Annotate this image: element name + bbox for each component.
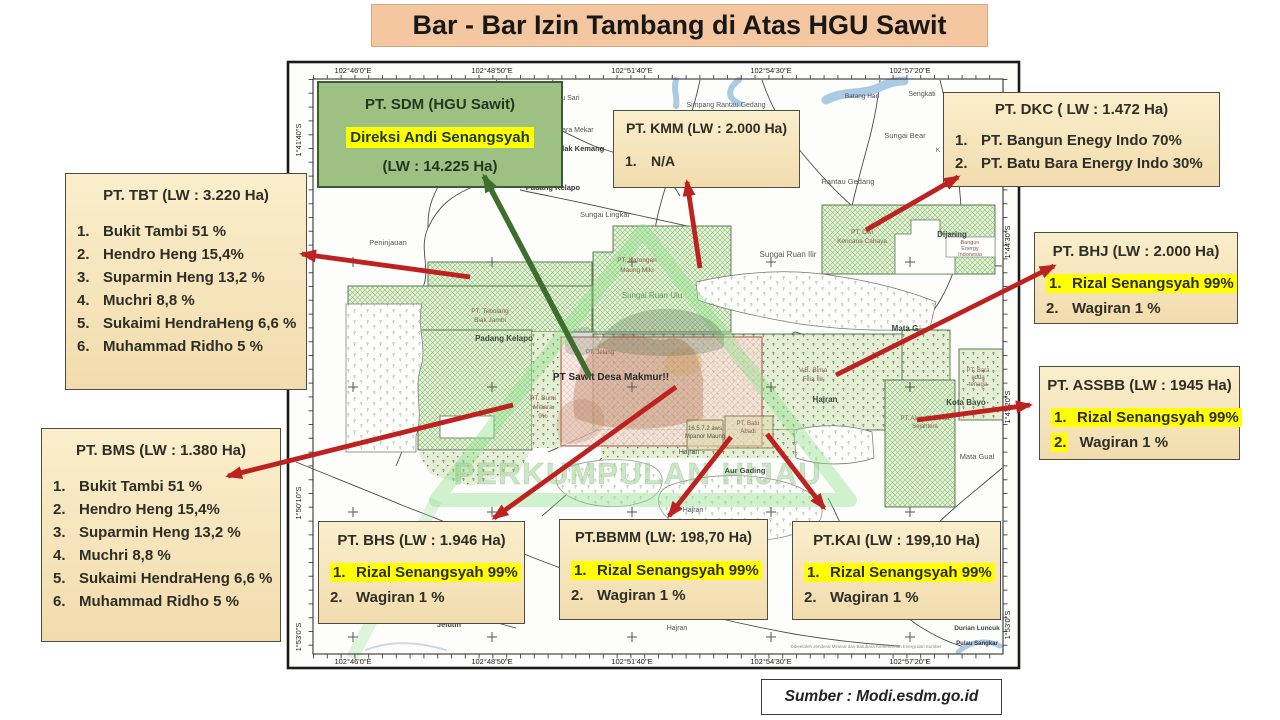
svg-text:102°46'0"E: 102°46'0"E	[334, 66, 371, 75]
svg-text:PT. Karongan: PT. Karongan	[617, 257, 657, 264]
svg-text:102°54'30"E: 102°54'30"E	[750, 657, 791, 666]
svg-text:16.5.7.2 aws: 16.5.7.2 aws	[688, 426, 722, 432]
svg-text:Peninjauan: Peninjauan	[369, 238, 407, 247]
svg-text:PT. Jelang: PT. Jelang	[586, 350, 614, 356]
svg-text:PT. Alam Semesta: PT. Alam Semesta	[900, 416, 950, 422]
svg-text:Hajran: Hajran	[683, 507, 704, 514]
svg-text:102°51'40"E: 102°51'40"E	[611, 66, 652, 75]
svg-text:Hajran: Hajran	[667, 625, 688, 632]
svg-text:Sungai Ruan Ilir: Sungai Ruan Ilir	[760, 250, 817, 259]
svg-text:PT Sawit Desa Makmur!!: PT Sawit Desa Makmur!!	[553, 372, 669, 383]
svg-text:Aur Gading: Aur Gading	[725, 466, 766, 475]
svg-text:Maung Milu: Maung Milu	[620, 267, 654, 274]
svg-text:PERKUMPULAN HIJAU: PERKUMPULAN HIJAU	[454, 456, 822, 491]
svg-text:Rantau Gedang: Rantau Gedang	[822, 177, 875, 186]
svg-text:Filia Ilir: Filia Ilir	[803, 376, 824, 383]
svg-text:PT. Dwi: PT. Dwi	[851, 229, 873, 236]
svg-text:1°44'30"S: 1°44'30"S	[1003, 226, 1012, 259]
svg-text:1°53'0"S: 1°53'0"S	[294, 623, 303, 652]
svg-text:PT. Bara: PT. Bara	[966, 368, 990, 374]
svg-text:102°48'50"E: 102°48'50"E	[471, 657, 512, 666]
svg-text:1°41'40"S: 1°41'40"S	[294, 124, 303, 157]
svg-text:Sungai Bear: Sungai Bear	[884, 131, 926, 140]
svg-text:PT. Batu: PT. Batu	[737, 421, 760, 427]
svg-text:Abadi: Abadi	[740, 429, 755, 435]
svg-text:9%: 9%	[538, 413, 548, 420]
svg-text:V.B. Bima: V.B. Bima	[799, 367, 828, 374]
svg-text:Mpanor Maung: Mpanor Maung	[685, 434, 725, 440]
svg-text:Pulau Sangkar: Pulau Sangkar	[956, 641, 998, 647]
svg-text:Sungai Ruan Ulu: Sungai Ruan Ulu	[622, 291, 682, 300]
svg-text:Dibeetoleh Jenderal Mineral da: Dibeetoleh Jenderal Mineral dan Batubara…	[790, 644, 942, 649]
svg-text:Kencana Cahaya: Kencana Cahaya	[837, 238, 887, 245]
svg-text:1°47'20"S: 1°47'20"S	[1003, 391, 1012, 424]
svg-text:K: K	[936, 147, 941, 154]
svg-text:102°57'20"E: 102°57'20"E	[889, 66, 930, 75]
svg-text:PT. Bumi: PT. Bumi	[530, 395, 556, 402]
svg-text:102°51'40"E: 102°51'40"E	[611, 657, 652, 666]
svg-text:PT. Tebolang: PT. Tebolang	[471, 308, 509, 315]
svg-text:Sungai Lingkar: Sungai Lingkar	[580, 210, 631, 219]
svg-text:adda: adda	[971, 375, 985, 381]
svg-text:Mitiara: Mitiara	[533, 404, 553, 411]
svg-text:Sejahtera: Sejahtera	[912, 424, 938, 430]
svg-text:Kota Bayo: Kota Bayo	[946, 398, 986, 407]
svg-text:Hajran: Hajran	[813, 395, 838, 404]
svg-text:1°50'10"S: 1°50'10"S	[294, 487, 303, 520]
svg-text:Padang Kelapo: Padang Kelapo	[475, 334, 533, 343]
svg-text:Indonesia: Indonesia	[958, 252, 983, 258]
svg-text:Batang Hari: Batang Hari	[845, 93, 879, 100]
svg-text:Hajran: Hajran	[679, 449, 700, 456]
svg-text:Biak Jambi: Biak Jambi	[474, 317, 506, 324]
svg-text:102°48'50"E: 102°48'50"E	[471, 66, 512, 75]
svg-text:1°53'0"S: 1°53'0"S	[1003, 611, 1012, 640]
svg-text:102°46'0"E: 102°46'0"E	[334, 657, 371, 666]
svg-text:102°57'20"E: 102°57'20"E	[889, 657, 930, 666]
svg-text:102°54'30"E: 102°54'30"E	[750, 66, 791, 75]
svg-text:Mata G: Mata G	[892, 324, 919, 333]
svg-text:tenaga: tenaga	[969, 382, 988, 388]
svg-text:Simpang Rantau Gedang: Simpang Rantau Gedang	[687, 102, 766, 109]
svg-text:Dijaring: Dijaring	[937, 230, 967, 239]
svg-text:Sengkati: Sengkati	[908, 91, 936, 98]
svg-text:Durian Luncuk: Durian Luncuk	[954, 625, 1000, 632]
svg-text:Mata Gual: Mata Gual	[960, 452, 995, 461]
